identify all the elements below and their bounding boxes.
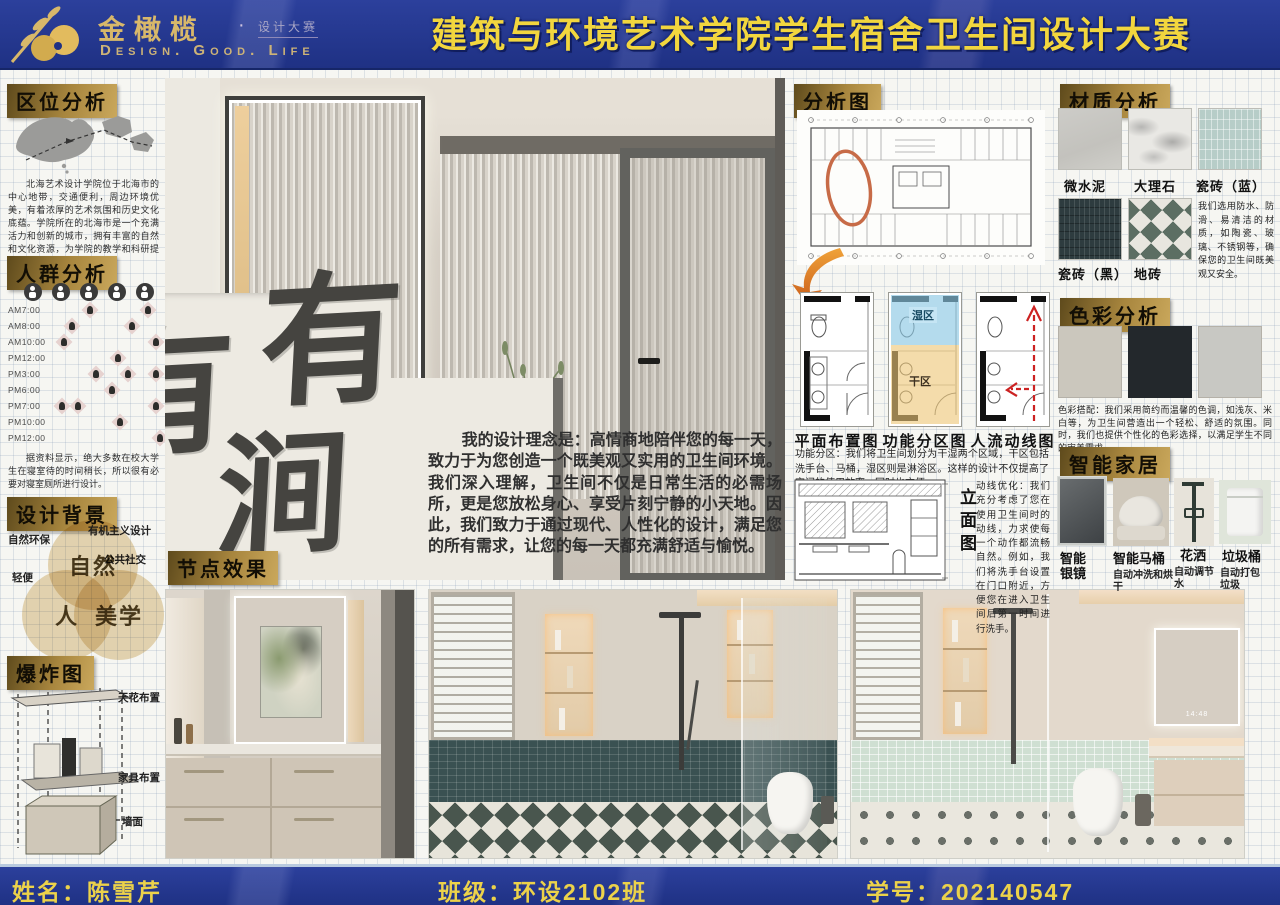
standing-person-icon (80, 283, 98, 301)
smart-item-desc: 自动打包垃圾 (1220, 568, 1268, 592)
drawer-handle (184, 818, 224, 821)
person-activity-icon (54, 398, 71, 415)
header-banner: 金橄榄 · 设计大赛 Design. Good. Life 建筑与环境艺术学院学… (0, 0, 1280, 70)
person-activity-icon (104, 382, 121, 399)
background-venn-diagram: 自然 人 美学 (22, 518, 162, 653)
exploded-label-wall: 墙面 (122, 814, 162, 829)
footer-name: 姓名：陈雪芹 (12, 873, 162, 905)
render-vanity (165, 589, 415, 859)
crowd-activity-icon-row (24, 283, 154, 301)
smart-item-name: 智能马桶 (1113, 552, 1173, 567)
venn-aesthetics: 美学 (74, 570, 164, 660)
person-activity-icon (88, 366, 105, 383)
person-activity-icon (70, 398, 87, 415)
flow-text: 动线优化：我们充分考虑了您在使用卫生间时的动线，力求使每一个动作都流畅自然。例如… (976, 480, 1050, 637)
door-handle (638, 358, 660, 364)
time-label: PM12:00 (8, 353, 46, 363)
running-person-icon (24, 283, 42, 301)
footer-class: 班级：环设2102班 (438, 873, 647, 905)
brand-subtitle: 设计大赛 (258, 18, 318, 38)
person-activity-icon (148, 334, 165, 351)
shower-head (659, 612, 701, 618)
design-philosophy-text: 我的设计理念是：高情商地陪伴您的每一天，致力于为您创造一个既美观又实用的卫生间环… (428, 430, 782, 558)
smart-shower-photo (1174, 478, 1214, 546)
smart-item-desc: 自动调节水 (1174, 567, 1218, 591)
person-activity-icon (112, 414, 129, 431)
footer-banner: 姓名：陈雪芹 班级：环设2102班 学号：202140547 (0, 864, 1280, 905)
person-activity-icon (148, 366, 165, 383)
abstract-art (260, 626, 322, 718)
calligraphy-char-you: 有 (256, 266, 405, 416)
material-label: 微水泥 (1064, 176, 1106, 195)
olive-branch-icon (6, 2, 94, 66)
shower-niche (545, 614, 593, 736)
wall-strip (381, 590, 395, 859)
walking-person-icon (136, 283, 154, 301)
person-activity-icon (140, 302, 157, 319)
cabinet-seam (166, 806, 381, 808)
mirror-clock: 14:48 (1156, 711, 1238, 718)
person-activity-icon (124, 318, 141, 335)
red-dashed-arrow-icon (1007, 307, 1041, 421)
color-swatch-charcoal (1128, 326, 1192, 398)
crowd-text: 据资料显示，绝大多数在校大学生在寝室待的时间稍长，所以很有必要对寝室厕所进行设计… (8, 452, 159, 491)
vanity-mirror: 14:48 (1154, 628, 1240, 726)
time-label: AM8:00 (8, 321, 40, 331)
material-label: 地砖 (1134, 264, 1162, 283)
smart-bin-photo (1219, 480, 1271, 544)
crowd-timeline: AM7:00 AM8:00 AM10:00 PM12:00 PM3:00 PM6… (0, 303, 165, 445)
china-map (6, 108, 158, 176)
material-label: 大理石 (1134, 176, 1176, 195)
smart-item-name: 智能银镜 (1060, 552, 1092, 582)
window-blinds (853, 592, 923, 740)
elevation-drawing (793, 478, 949, 583)
drawer-handle (294, 818, 334, 821)
material-floor-tile (1128, 198, 1192, 260)
bottle (955, 702, 961, 726)
material-microcement (1058, 108, 1122, 170)
brand-slogan: Design. Good. Life (100, 42, 315, 59)
section-title-node-effects: 节点效果 (168, 551, 278, 585)
materials-text: 我们选用防水、防滑、易清洁的材质，如陶瓷、玻璃、不锈钢等，确保您的卫生间既美观又… (1198, 200, 1274, 281)
framed-mirror (234, 596, 346, 744)
plan-circulation (976, 292, 1050, 427)
drawer-handle (294, 770, 334, 773)
bottle (963, 658, 969, 682)
poster-title: 建筑与环境艺术学院学生宿舍卫生间设计大赛 (350, 4, 1272, 66)
bottle (186, 724, 193, 744)
person-activity-icon (56, 334, 73, 351)
bottle (559, 708, 565, 730)
resting-person-icon (108, 283, 126, 301)
exploded-label-furniture: 家具布置 (118, 770, 164, 785)
material-label: 瓷砖（黑） (1058, 264, 1128, 283)
cabinet-seam (1154, 794, 1245, 796)
warm-backlight (348, 600, 364, 742)
smart-toilet-photo (1113, 478, 1169, 546)
material-tile-black (1058, 198, 1122, 260)
dark-door-edge (395, 590, 415, 859)
vanity-counter (1149, 746, 1245, 758)
bottle (555, 630, 561, 650)
time-label: PM10:00 (8, 417, 46, 427)
wet-zone-label: 湿区 (909, 307, 937, 323)
time-label: PM3:00 (8, 369, 40, 379)
drawer-handle (184, 770, 224, 773)
time-label: PM6:00 (8, 385, 40, 395)
person-activity-icon (120, 366, 137, 383)
bottle (567, 666, 573, 688)
toilet (1073, 768, 1123, 836)
building-floor-plan (797, 110, 1045, 265)
time-label: AM7:00 (8, 305, 40, 315)
time-label: PM7:00 (8, 401, 40, 411)
smart-mirror-photo (1057, 476, 1107, 546)
person-activity-icon (110, 350, 127, 367)
time-label: PM12:00 (8, 433, 46, 443)
shower-column (679, 618, 684, 770)
color-swatch-beige (1058, 326, 1122, 398)
smart-item-name: 垃圾桶 (1222, 550, 1270, 565)
bottle (952, 620, 958, 642)
person-activity-icon (148, 398, 165, 415)
calligraphy-char-jian: 涧 (214, 426, 353, 565)
trash-bin (1135, 794, 1151, 826)
bottle (174, 718, 182, 744)
dry-zone-label: 干区 (909, 373, 931, 389)
vanity-cabinet (166, 758, 381, 859)
vanity-counter (166, 744, 381, 756)
color-swatch-gray (1198, 326, 1262, 398)
material-label: 瓷砖（蓝） (1196, 176, 1266, 195)
plan-zoning: 湿区 干区 (888, 292, 962, 427)
smart-item-name: 花洒 (1180, 549, 1212, 564)
person-activity-icon (82, 302, 99, 319)
plan-layout (800, 292, 874, 427)
poster: 金橄榄 · 设计大赛 Design. Good. Life 建筑与环境艺术学院学… (0, 0, 1280, 905)
vanity-backlight (1149, 738, 1245, 746)
vanity-cabinet (1154, 760, 1245, 826)
person-activity-icon (64, 318, 81, 335)
time-label: AM10:00 (8, 337, 46, 347)
grooming-person-icon (52, 283, 70, 301)
exploded-label-ceiling: 天花布置 (118, 690, 164, 705)
cabinet-seam (270, 758, 272, 859)
material-tile-blue (1198, 108, 1262, 170)
trash-bin (821, 796, 834, 824)
toilet (767, 772, 813, 834)
render-shower-dark (428, 589, 838, 859)
footer-student-id: 学号：202140547 (866, 873, 1074, 905)
brand-separator: · (238, 14, 245, 37)
material-marble (1128, 108, 1192, 170)
window-blinds (431, 592, 515, 740)
smart-item-desc: 自动冲洗和烘干 (1113, 570, 1177, 594)
